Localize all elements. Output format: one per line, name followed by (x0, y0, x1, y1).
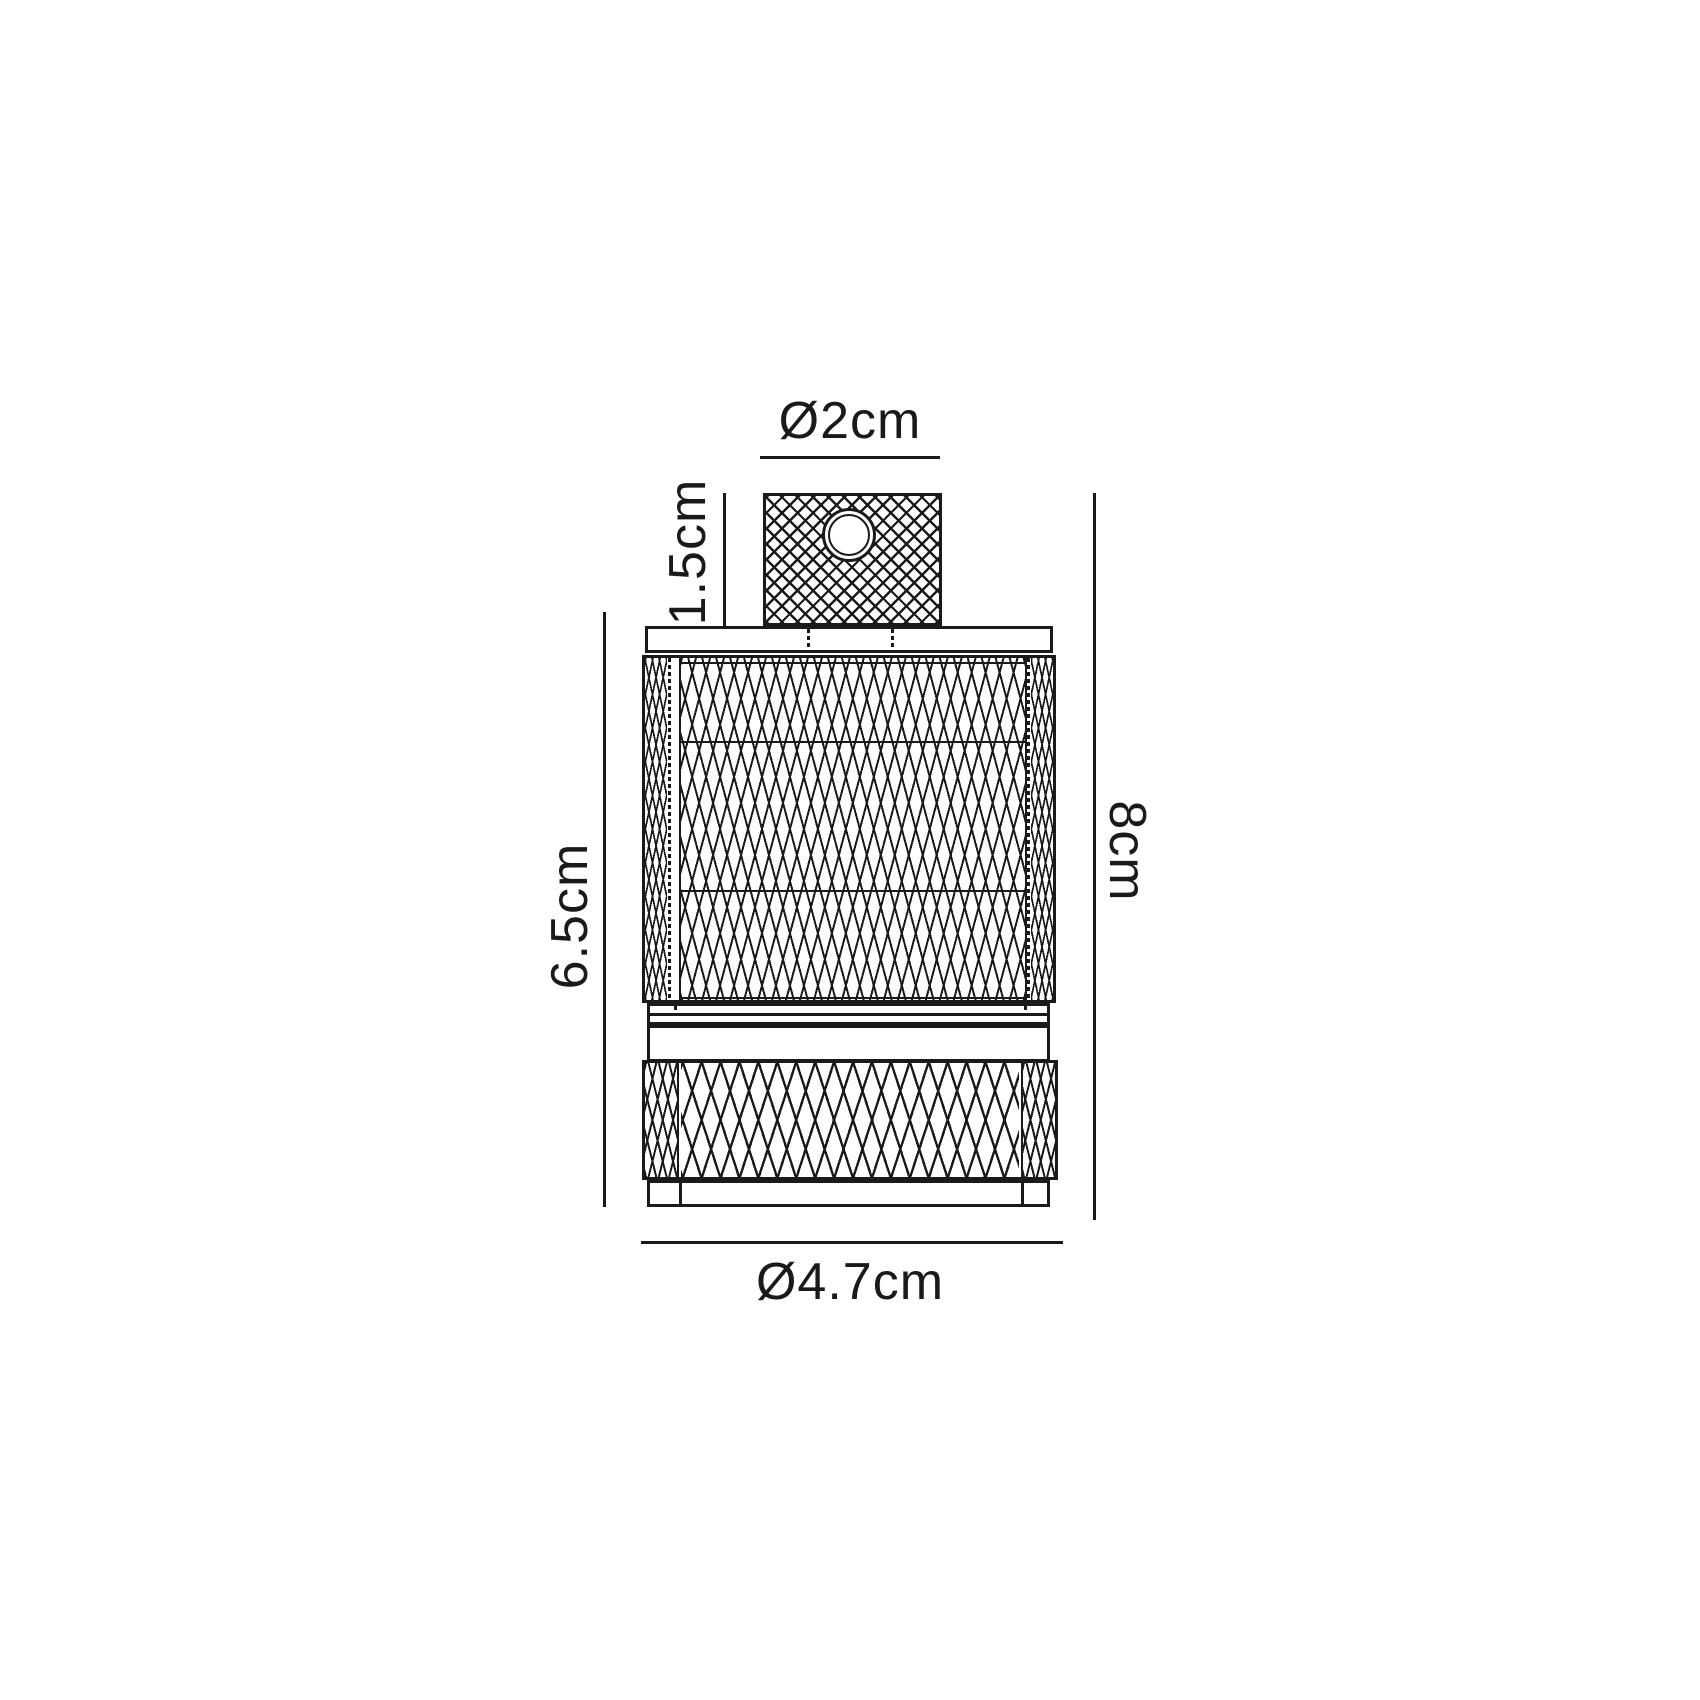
ring-hidden-edge-left (674, 1006, 677, 1013)
body-band-line-3 (681, 890, 1025, 892)
dim-label-body-height: 6.5cm (540, 796, 600, 1036)
dim-line-body-height (603, 612, 606, 1207)
body-band-line-4 (681, 997, 1025, 999)
dim-line-top-diameter (760, 456, 940, 459)
main-body (642, 655, 1056, 1003)
dim-line-total-height (1093, 493, 1096, 1220)
dimension-diagram: Ø2cm 1.5cm 6.5cm 8cm (0, 0, 1700, 1700)
body-side-band-right (1031, 658, 1053, 1000)
band-center (681, 1063, 1019, 1177)
body-mesh-window (679, 658, 1027, 1000)
rim-edge-line-right (1021, 1183, 1024, 1204)
dim-label-base-diameter: Ø4.7cm (700, 1252, 1000, 1312)
rim-edge-line-left (679, 1183, 682, 1204)
body-hidden-edge-right (1027, 658, 1030, 1000)
lower-knurled-band (642, 1060, 1058, 1180)
lower-ring-plain (647, 1025, 1050, 1062)
cap-hole-inner-ring (828, 514, 870, 556)
bottom-rim (647, 1180, 1050, 1207)
lower-ring-thin (647, 1013, 1050, 1025)
top-collar (645, 626, 1053, 653)
dim-line-cap-height (723, 493, 726, 627)
body-hidden-edge-left (668, 658, 671, 1000)
dim-line-base-diameter (641, 1241, 1063, 1244)
body-band-line-2 (681, 741, 1025, 743)
body-band-line-1 (681, 662, 1025, 664)
neck-hidden-edge-left (807, 629, 810, 650)
band-edge-right (1021, 1063, 1055, 1177)
ring-hidden-edge-right (1024, 1006, 1027, 1013)
dim-label-total-height: 8cm (1097, 731, 1157, 971)
cap-knurled (763, 493, 942, 626)
band-edge-left (645, 1063, 679, 1177)
body-side-band-left (645, 658, 667, 1000)
dim-label-top-diameter: Ø2cm (700, 391, 1000, 451)
neck-hidden-edge-right (891, 629, 894, 650)
